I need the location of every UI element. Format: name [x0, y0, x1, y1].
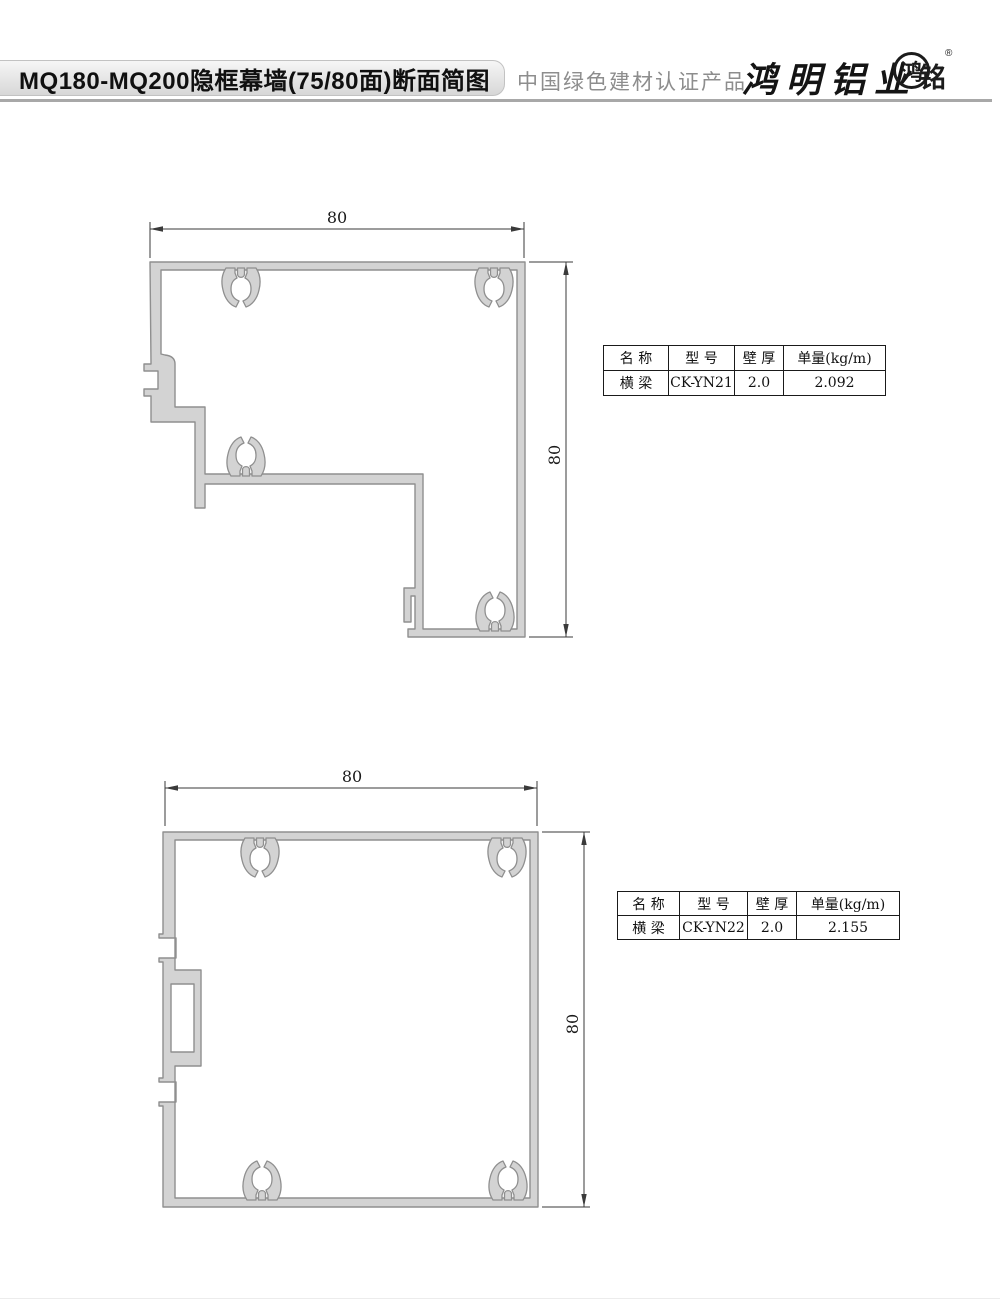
dim-height-label: 80 [545, 445, 564, 465]
screw-boss-middle [227, 437, 265, 476]
table2-cell-weight: 2.155 [797, 916, 900, 940]
table2-cell-name: 横 梁 [618, 916, 680, 940]
square-profile-outline [159, 832, 538, 1207]
table1-cell-weight: 2.092 [784, 371, 886, 396]
page-bottom-edge [0, 1298, 1000, 1299]
screw-boss-top-left [241, 838, 279, 877]
table1-cell-model: CK-YN21 [669, 371, 735, 396]
screw-boss-top-right [475, 268, 513, 307]
table1-header-weight: 单量(kg/m) [784, 346, 886, 371]
dim-height-label: 80 [563, 1014, 582, 1034]
screw-boss-bottom [476, 592, 514, 631]
table1-cell-wall: 2.0 [735, 371, 784, 396]
page-title-bar: MQ180-MQ200隐框幕墙(75/80面)断面简图 [0, 60, 505, 96]
table1-header-name: 名 称 [604, 346, 669, 371]
screw-boss-bottom-left [243, 1161, 281, 1200]
brand-calligraphy: 鸿明铝业 [742, 52, 918, 103]
page-title: MQ180-MQ200隐框幕墙(75/80面)断面简图 [19, 61, 490, 96]
table2-header-wall: 壁 厚 [748, 892, 797, 916]
table-row: 横 梁 CK-YN22 2.0 2.155 [618, 916, 900, 940]
corner-profile-outline [144, 262, 525, 637]
table2-header-weight: 单量(kg/m) [797, 892, 900, 916]
table2-header-name: 名 称 [618, 892, 680, 916]
screw-boss-top-left [222, 268, 260, 307]
table1-cell-name: 横 梁 [604, 371, 669, 396]
table2-header-model: 型 号 [680, 892, 748, 916]
registered-trademark-icon: ® [945, 48, 952, 59]
dim-width-label: 80 [327, 208, 347, 227]
dim-width-label: 80 [342, 767, 362, 786]
screw-boss-bottom-right [489, 1161, 527, 1200]
table2-cell-wall: 2.0 [748, 916, 797, 940]
table1-header-model: 型 号 [669, 346, 735, 371]
square-profile-drawing: 80 80 [138, 753, 612, 1227]
spec-table-1: 名 称 型 号 壁 厚 单量(kg/m) 横 梁 CK-YN21 2.0 2.0… [603, 345, 886, 396]
certification-label: 中国绿色建材认证产品 [517, 66, 747, 96]
corner-profile-drawing: 80 80 [128, 203, 592, 657]
spec-table-2: 名 称 型 号 壁 厚 单量(kg/m) 横 梁 CK-YN22 2.0 2.1… [617, 891, 900, 940]
brand-seal-logo: 鸿 铭 ® [893, 50, 963, 96]
table1-header-wall: 壁 厚 [735, 346, 784, 371]
seal-side-character: 铭 [919, 56, 946, 95]
table-row: 横 梁 CK-YN21 2.0 2.092 [604, 371, 886, 396]
screw-boss-top-right [488, 838, 526, 877]
table2-cell-model: CK-YN22 [680, 916, 748, 940]
